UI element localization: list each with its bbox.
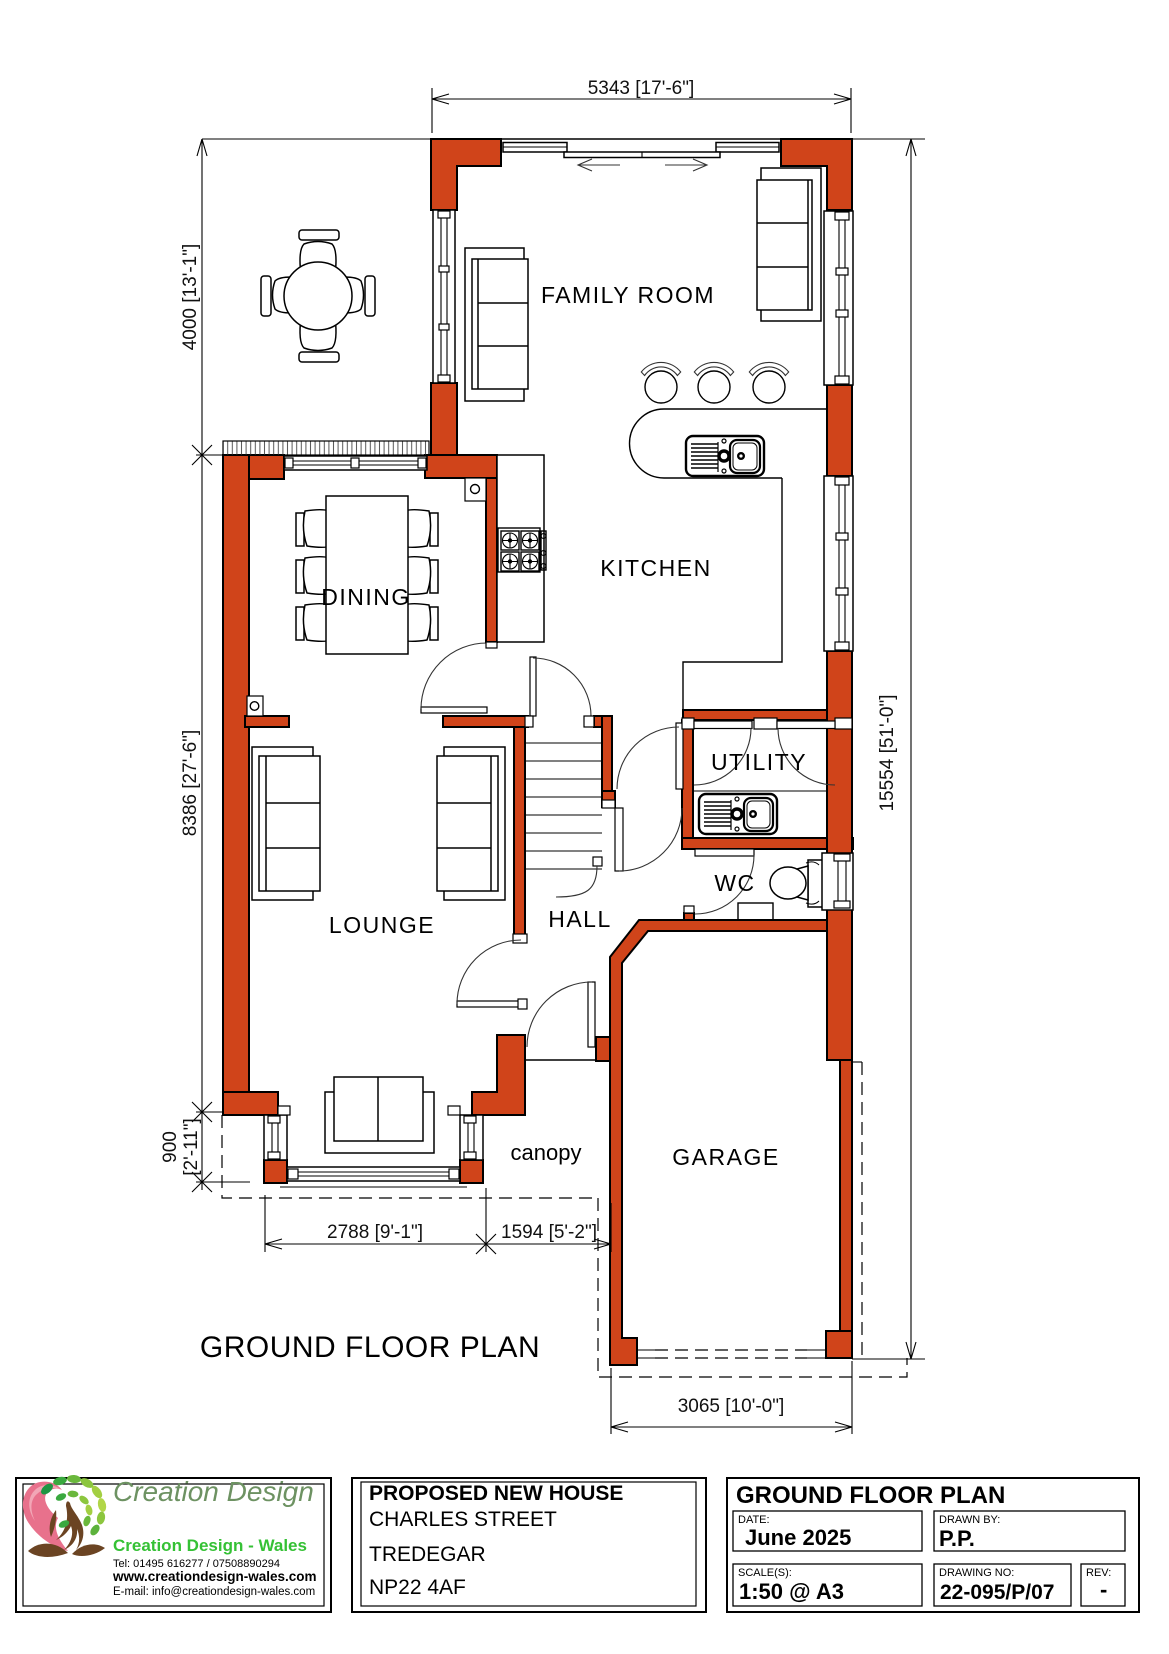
svg-text:HALL: HALL	[548, 906, 612, 932]
svg-text:CHARLES STREET: CHARLES STREET	[369, 1508, 557, 1531]
svg-text:www.creationdesign-wales.com: www.creationdesign-wales.com	[112, 1569, 317, 1584]
svg-text:900: 900	[160, 1131, 181, 1163]
svg-text:5343 [17'-6"]: 5343 [17'-6"]	[588, 78, 695, 99]
svg-text:WC: WC	[714, 870, 755, 896]
svg-text:PROPOSED NEW HOUSE: PROPOSED NEW HOUSE	[369, 1482, 623, 1505]
svg-text:22-095/P/07: 22-095/P/07	[940, 1581, 1054, 1604]
svg-text:June 2025: June 2025	[745, 1525, 851, 1550]
svg-text:LOUNGE: LOUNGE	[329, 912, 435, 938]
svg-text:REV:: REV:	[1086, 1567, 1111, 1579]
svg-text:TREDEGAR: TREDEGAR	[369, 1543, 486, 1566]
svg-text:DRAWING NO:: DRAWING NO:	[939, 1567, 1014, 1579]
svg-text:DINING: DINING	[321, 584, 411, 610]
svg-text:3065 [10'-0"]: 3065 [10'-0"]	[678, 1396, 785, 1417]
svg-text:NP22 4AF: NP22 4AF	[369, 1576, 466, 1599]
svg-text:canopy: canopy	[511, 1140, 582, 1165]
svg-text:1:50 @ A3: 1:50 @ A3	[739, 1579, 844, 1604]
svg-text:1594 [5'-2"]: 1594 [5'-2"]	[501, 1222, 597, 1243]
svg-text:2788 [9'-1"]: 2788 [9'-1"]	[327, 1222, 423, 1243]
svg-text:UTILITY: UTILITY	[711, 749, 807, 775]
svg-text:Creation Design - Wales: Creation Design - Wales	[113, 1536, 307, 1555]
svg-text:DRAWN BY:: DRAWN BY:	[939, 1514, 1000, 1526]
svg-text:[2'-11"]: [2'-11"]	[181, 1118, 202, 1176]
svg-text:SCALE(S):: SCALE(S):	[738, 1567, 792, 1579]
svg-text:FAMILY ROOM: FAMILY ROOM	[541, 282, 715, 308]
svg-text:8386 [27'-6"]: 8386 [27'-6"]	[180, 730, 201, 837]
svg-text:Creation Design: Creation Design	[113, 1476, 314, 1507]
svg-text:GARAGE: GARAGE	[672, 1144, 779, 1170]
svg-text:E-mail: info@creationdesign-wa: E-mail: info@creationdesign-wales.com	[113, 1586, 315, 1598]
svg-text:GROUND FLOOR PLAN: GROUND FLOOR PLAN	[200, 1331, 540, 1364]
svg-text:-: -	[1100, 1577, 1107, 1602]
svg-text:15554 [51'-0"]: 15554 [51'-0"]	[877, 694, 898, 811]
svg-text:P.P.: P.P.	[939, 1526, 975, 1551]
svg-text:KITCHEN: KITCHEN	[600, 555, 711, 581]
svg-text:4000 [13'-1"]: 4000 [13'-1"]	[180, 244, 201, 351]
svg-text:GROUND FLOOR PLAN: GROUND FLOOR PLAN	[736, 1482, 1005, 1509]
